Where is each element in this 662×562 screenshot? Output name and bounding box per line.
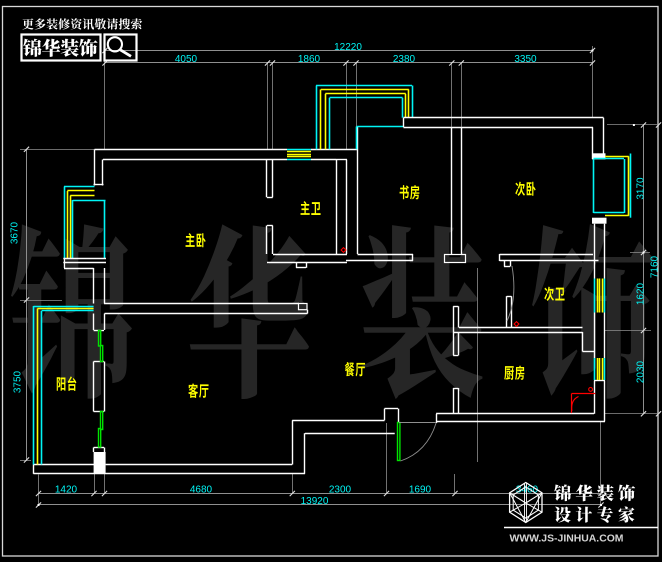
svg-text:4680: 4680	[190, 484, 213, 495]
svg-text:4050: 4050	[175, 54, 198, 65]
svg-text:12220: 12220	[334, 42, 362, 53]
svg-text:1420: 1420	[55, 484, 78, 495]
svg-text:2030: 2030	[636, 360, 647, 383]
svg-text:1690: 1690	[409, 484, 432, 495]
svg-text:3350: 3350	[514, 54, 537, 65]
svg-text:1620: 1620	[636, 282, 647, 305]
svg-text:1860: 1860	[298, 54, 321, 65]
svg-text:7160: 7160	[650, 255, 661, 278]
svg-text:3750: 3750	[13, 370, 24, 393]
svg-text:13920: 13920	[301, 496, 329, 507]
svg-text:WWW.JS-JINHUA.COM: WWW.JS-JINHUA.COM	[510, 533, 624, 545]
svg-text:3170: 3170	[636, 177, 647, 200]
svg-text:3670: 3670	[10, 221, 21, 244]
svg-text:2300: 2300	[329, 484, 352, 495]
svg-text:2380: 2380	[393, 54, 416, 65]
